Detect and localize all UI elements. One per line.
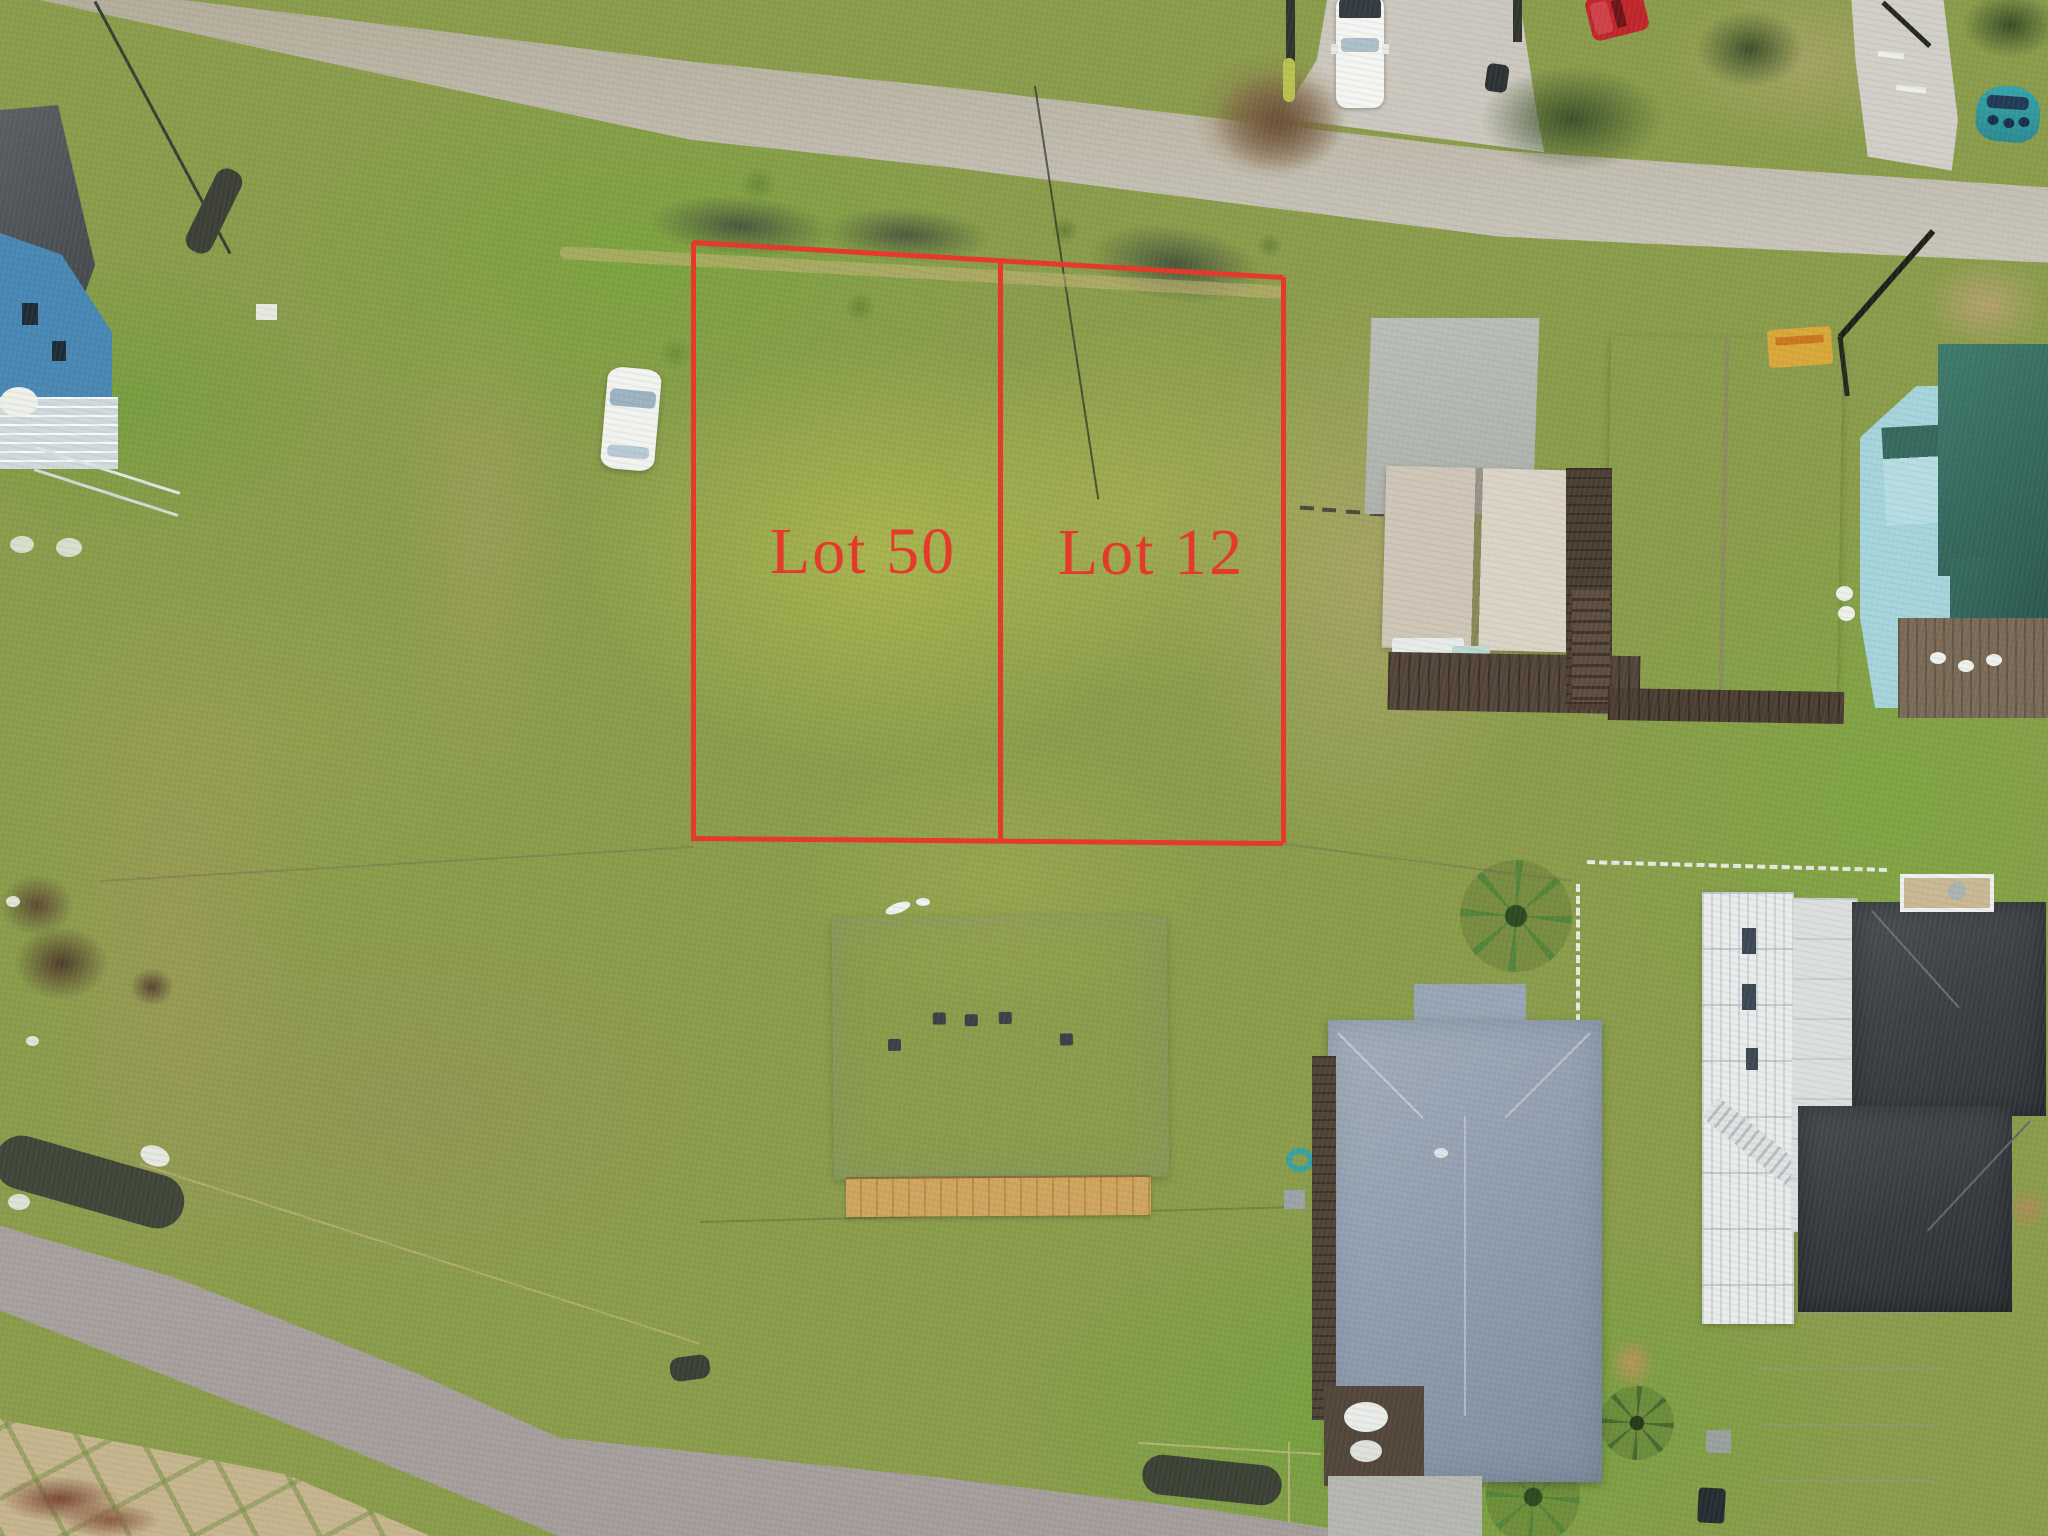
lot-boundary-top	[693, 240, 1283, 280]
lot-annotation: Lot 50 Lot 12	[0, 0, 2048, 1536]
lot-boundary-bottom	[693, 836, 1283, 846]
lot-boundary-divider	[998, 259, 1003, 839]
lot-boundary-left	[691, 242, 696, 841]
aerial-photo: Lot 50 Lot 12	[0, 0, 2048, 1536]
lot-boundary-right	[1281, 277, 1286, 843]
lot-50-label: Lot 50	[770, 514, 956, 590]
lot-12-label: Lot 12	[1058, 515, 1244, 591]
